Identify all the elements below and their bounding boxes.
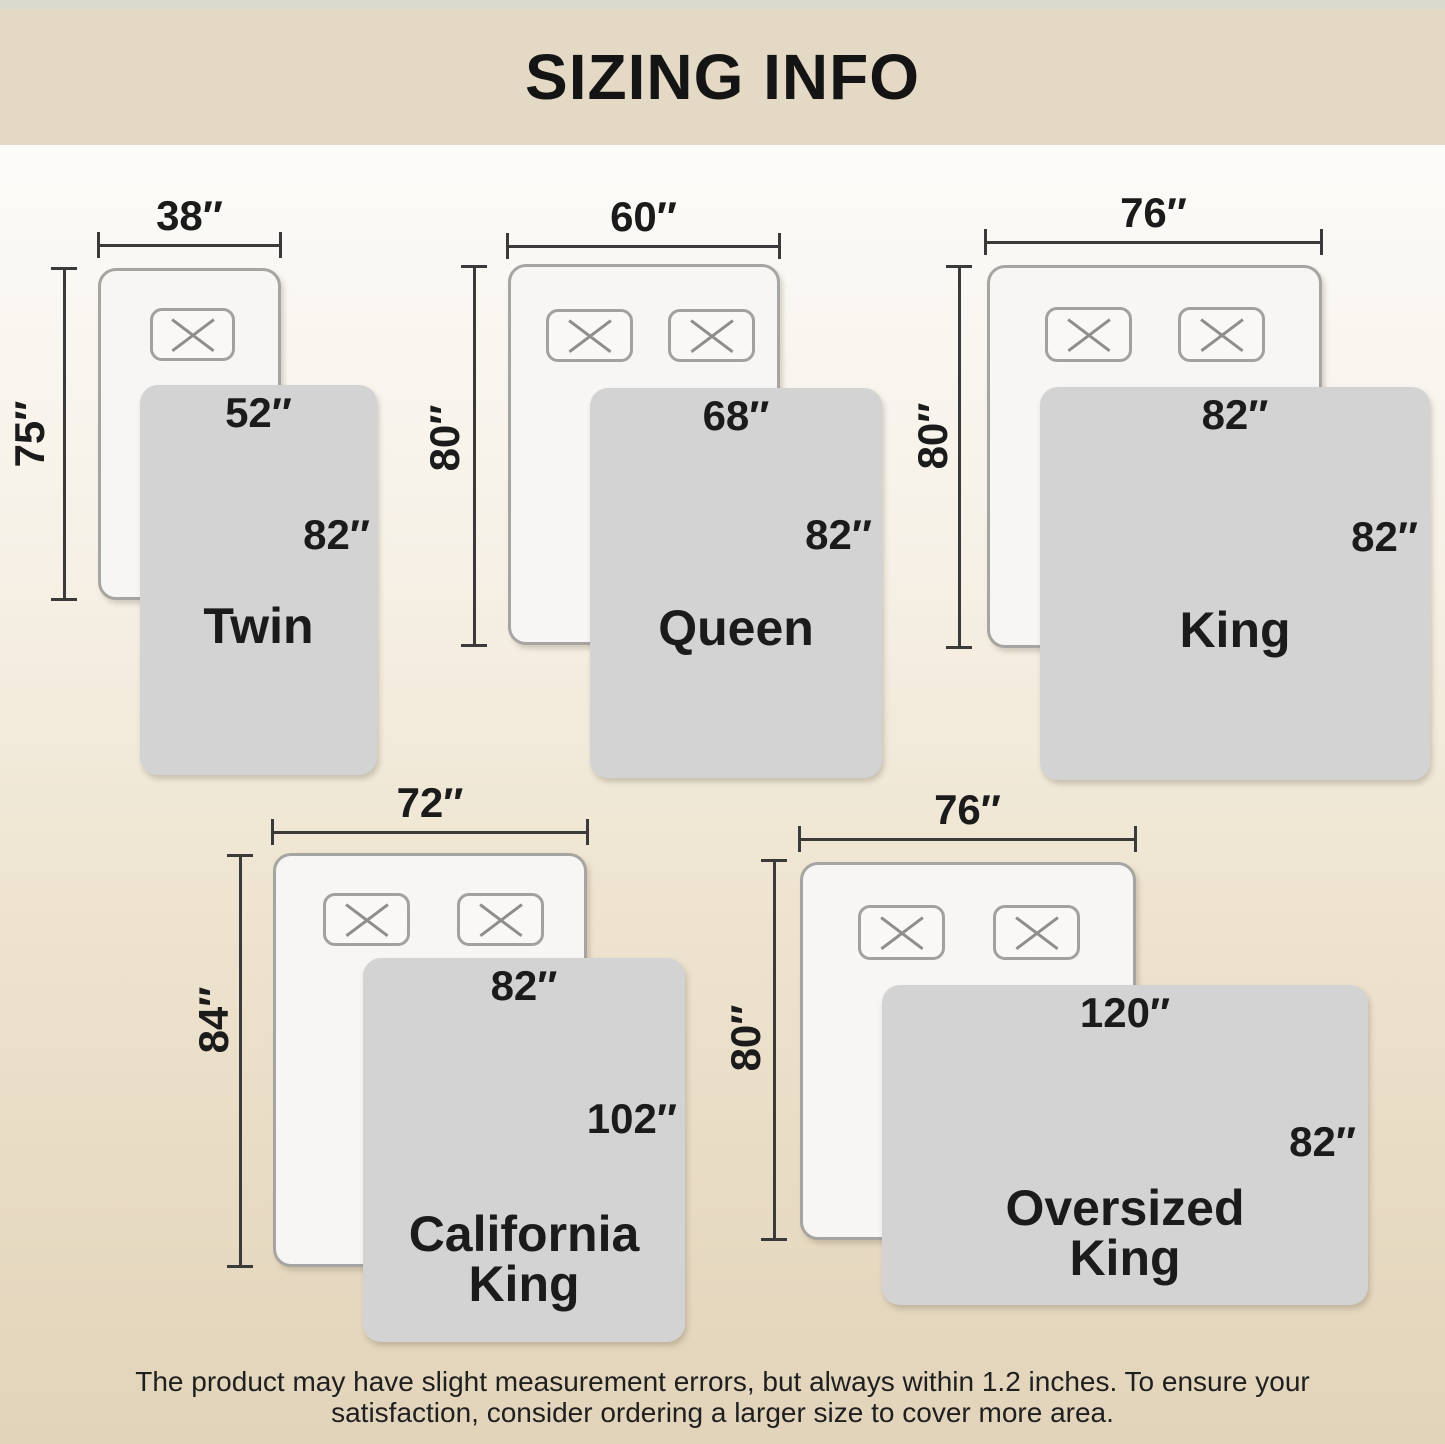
page-title: SIZING INFO <box>525 40 920 114</box>
sizing-info-page: SIZING INFO 38″ 75″ 52″ 82″ Twin 60″ 80″… <box>0 0 1445 1444</box>
x-mark-icon <box>671 312 752 359</box>
length-dimension-line <box>239 855 242 1267</box>
blanket-length-label: 82″ <box>882 1118 1356 1166</box>
bed-length-label: 84″ <box>192 975 236 1065</box>
width-dimension-line <box>98 244 281 247</box>
blanket-width-label: 120″ <box>882 989 1368 1037</box>
bed-length-label: 80″ <box>724 993 768 1083</box>
bed-length-label: 80″ <box>423 393 467 483</box>
length-dimension-line <box>63 268 66 600</box>
pillow <box>150 308 235 361</box>
x-mark-icon <box>1048 310 1129 359</box>
size-name-line: King <box>1040 605 1430 655</box>
size-name-line: California <box>363 1209 685 1259</box>
size-name-label: Twin <box>140 601 377 651</box>
pillow <box>546 309 633 362</box>
footer-note: The product may have slight measurement … <box>0 1366 1445 1428</box>
size-name-label: King <box>1040 605 1430 655</box>
size-name-line: King <box>882 1233 1368 1283</box>
bed-length-label: 75″ <box>8 389 52 479</box>
length-dimension-line <box>473 266 476 646</box>
blanket-length-label: 102″ <box>363 1095 677 1143</box>
length-dimension-line <box>773 860 776 1240</box>
x-mark-icon <box>1181 310 1262 359</box>
bed-width-label: 60″ <box>507 193 780 241</box>
blanket <box>140 385 377 775</box>
pillow <box>668 309 755 362</box>
blanket-length-label: 82″ <box>1040 513 1418 561</box>
size-name-line: King <box>363 1259 685 1309</box>
blanket <box>590 388 882 778</box>
blanket-length-label: 82″ <box>140 511 370 559</box>
blanket-width-label: 82″ <box>1040 391 1430 439</box>
bed-length-label: 80″ <box>911 391 955 481</box>
blanket-width-label: 52″ <box>140 389 377 437</box>
x-mark-icon <box>326 896 407 943</box>
pillow <box>323 893 410 946</box>
blanket-width-label: 68″ <box>590 392 882 440</box>
length-dimension-line <box>958 266 961 648</box>
footer-note-line1: The product may have slight measurement … <box>0 1366 1445 1397</box>
x-mark-icon <box>460 896 541 943</box>
size-name-line: Oversized <box>882 1183 1368 1233</box>
size-name-line: Twin <box>140 601 377 651</box>
size-name-label: Oversized King <box>882 1183 1368 1283</box>
width-dimension-line <box>799 838 1136 841</box>
header-band: SIZING INFO <box>0 9 1445 145</box>
x-mark-icon <box>549 312 630 359</box>
pillow <box>1178 307 1265 362</box>
footer-note-line2: satisfaction, consider ordering a larger… <box>0 1397 1445 1428</box>
top-border-strip <box>0 0 1445 9</box>
x-mark-icon <box>153 311 232 358</box>
pillow <box>993 905 1080 960</box>
width-dimension-line <box>507 245 780 248</box>
x-mark-icon <box>861 908 942 957</box>
bed-width-label: 72″ <box>272 779 588 827</box>
blanket-length-label: 82″ <box>590 511 872 559</box>
blanket-width-label: 82″ <box>363 962 685 1010</box>
pillow <box>457 893 544 946</box>
bed-width-label: 76″ <box>985 189 1322 237</box>
pillow <box>1045 307 1132 362</box>
size-name-label: Queen <box>590 603 882 653</box>
bed-width-label: 38″ <box>78 192 301 240</box>
width-dimension-line <box>985 241 1322 244</box>
width-dimension-line <box>272 831 588 834</box>
x-mark-icon <box>996 908 1077 957</box>
bed-width-label: 76″ <box>799 786 1136 834</box>
size-name-line: Queen <box>590 603 882 653</box>
size-name-label: California King <box>363 1209 685 1309</box>
pillow <box>858 905 945 960</box>
blanket <box>1040 387 1430 780</box>
